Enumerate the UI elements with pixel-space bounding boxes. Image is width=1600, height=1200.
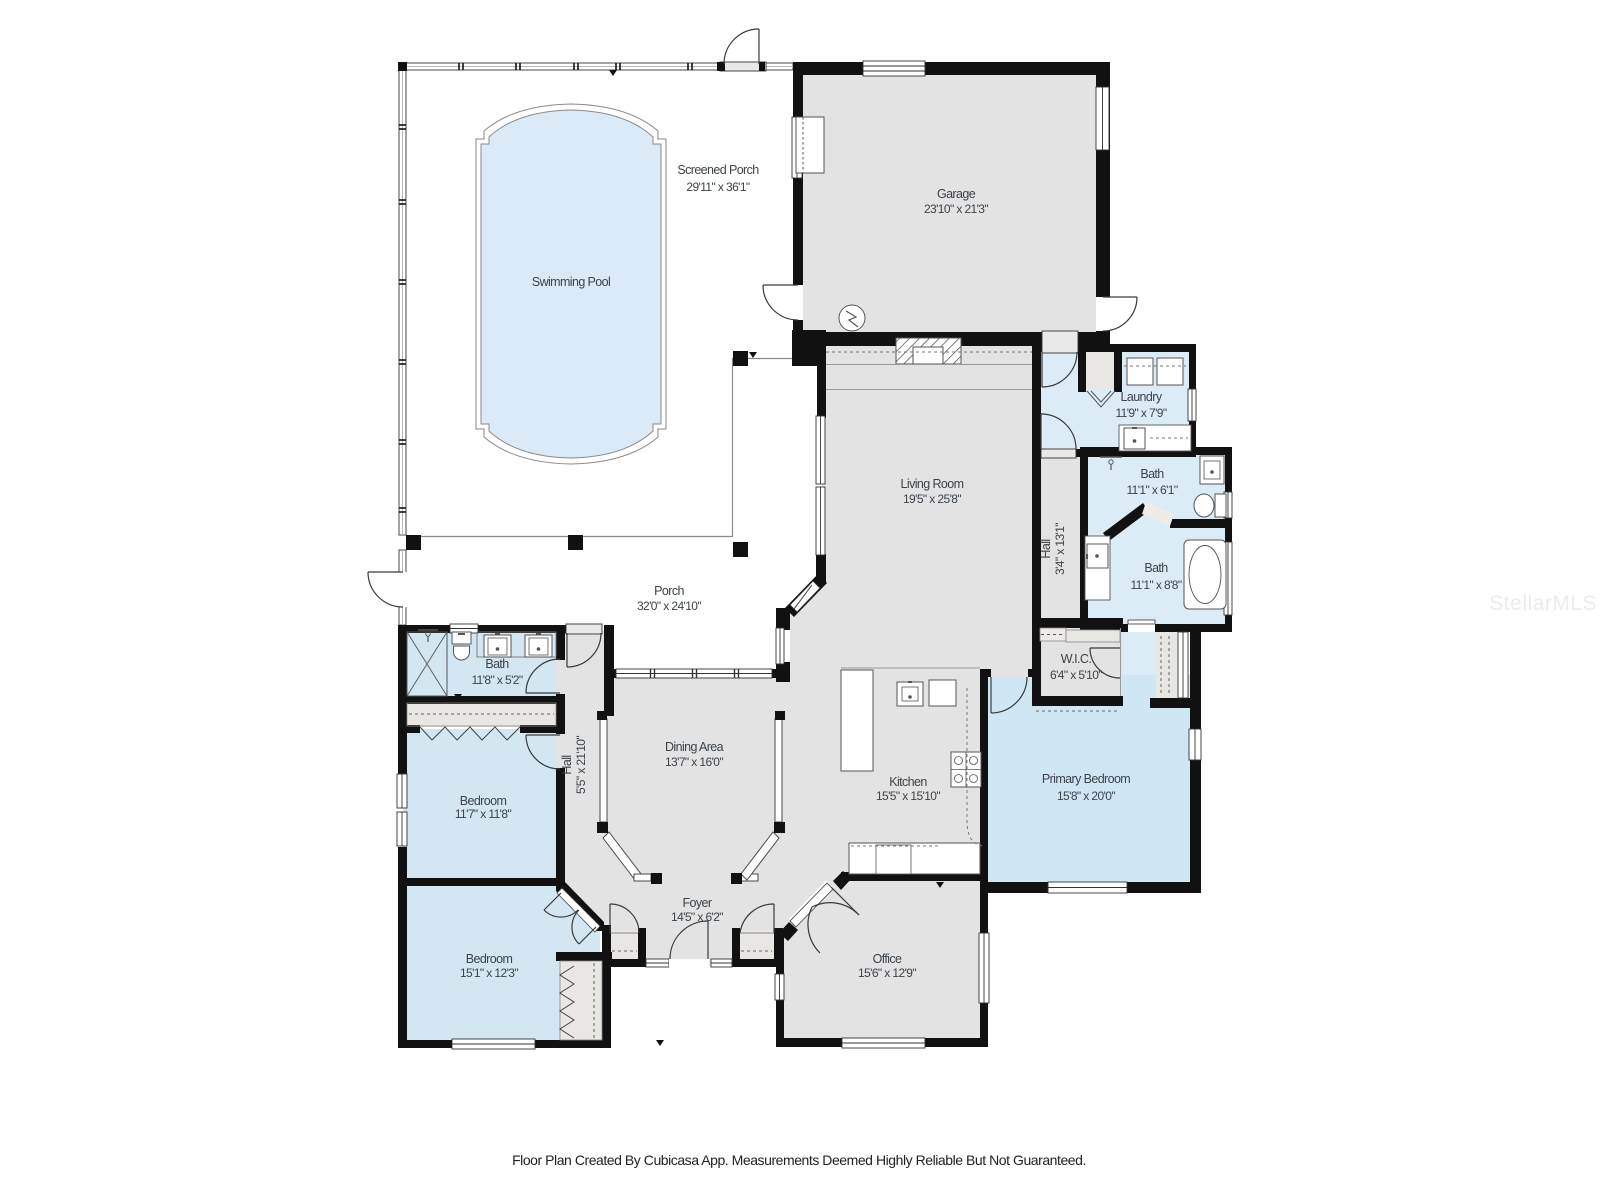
svg-text:Kitchen: Kitchen (889, 775, 927, 789)
svg-text:19'5" x 25'8": 19'5" x 25'8" (903, 492, 961, 506)
svg-text:11'1" x 6'1": 11'1" x 6'1" (1126, 483, 1177, 497)
svg-text:Laundry: Laundry (1121, 390, 1163, 404)
svg-text:Bedroom: Bedroom (460, 794, 507, 808)
svg-text:15'8" x 20'0": 15'8" x 20'0" (1057, 789, 1115, 803)
svg-text:Bedroom: Bedroom (466, 952, 513, 966)
svg-text:29'11" x 36'1": 29'11" x 36'1" (686, 180, 750, 194)
svg-text:Foyer: Foyer (683, 896, 712, 910)
svg-text:11'8" x 5'2": 11'8" x 5'2" (471, 673, 522, 687)
svg-text:Bath: Bath (485, 657, 509, 671)
svg-text:11'7" x 11'8": 11'7" x 11'8" (455, 807, 512, 821)
svg-text:5'5" x 21'10": 5'5" x 21'10" (574, 736, 588, 794)
svg-text:Hall: Hall (560, 755, 574, 774)
svg-text:W.I.C.: W.I.C. (1061, 652, 1092, 666)
svg-text:Living Room: Living Room (901, 477, 964, 491)
svg-text:15'6" x 12'9": 15'6" x 12'9" (858, 966, 916, 980)
svg-text:Hall: Hall (1039, 539, 1053, 558)
svg-text:6'4" x 5'10": 6'4" x 5'10" (1050, 668, 1102, 682)
svg-text:Floor Plan Created By Cubicasa: Floor Plan Created By Cubicasa App. Meas… (512, 1152, 1086, 1168)
svg-text:Bath: Bath (1140, 467, 1164, 481)
svg-text:Bath: Bath (1144, 561, 1168, 575)
svg-text:Garage: Garage (937, 187, 976, 201)
svg-text:23'10" x 21'3": 23'10" x 21'3" (924, 202, 988, 216)
svg-text:14'5" x 6'2": 14'5" x 6'2" (671, 910, 723, 924)
svg-text:15'5" x 15'10": 15'5" x 15'10" (876, 789, 940, 803)
svg-text:Primary Bedroom: Primary Bedroom (1042, 772, 1130, 786)
svg-text:32'0" x 24'10": 32'0" x 24'10" (637, 599, 701, 613)
svg-text:11'9" x 7'9": 11'9" x 7'9" (1115, 406, 1166, 420)
svg-text:Screened Porch: Screened Porch (677, 163, 759, 177)
svg-text:13'7" x 16'0": 13'7" x 16'0" (665, 755, 723, 769)
svg-text:StellarMLS: StellarMLS (1489, 592, 1597, 615)
svg-text:Porch: Porch (654, 584, 684, 598)
svg-text:3'4" x 13'1": 3'4" x 13'1" (1053, 523, 1067, 575)
svg-text:Office: Office (873, 952, 902, 966)
svg-text:11'1" x 8'8": 11'1" x 8'8" (1130, 578, 1181, 592)
svg-text:15'1" x 12'3": 15'1" x 12'3" (460, 966, 518, 980)
svg-text:Swimming Pool: Swimming Pool (532, 275, 610, 289)
svg-text:Dining Area: Dining Area (665, 740, 724, 754)
